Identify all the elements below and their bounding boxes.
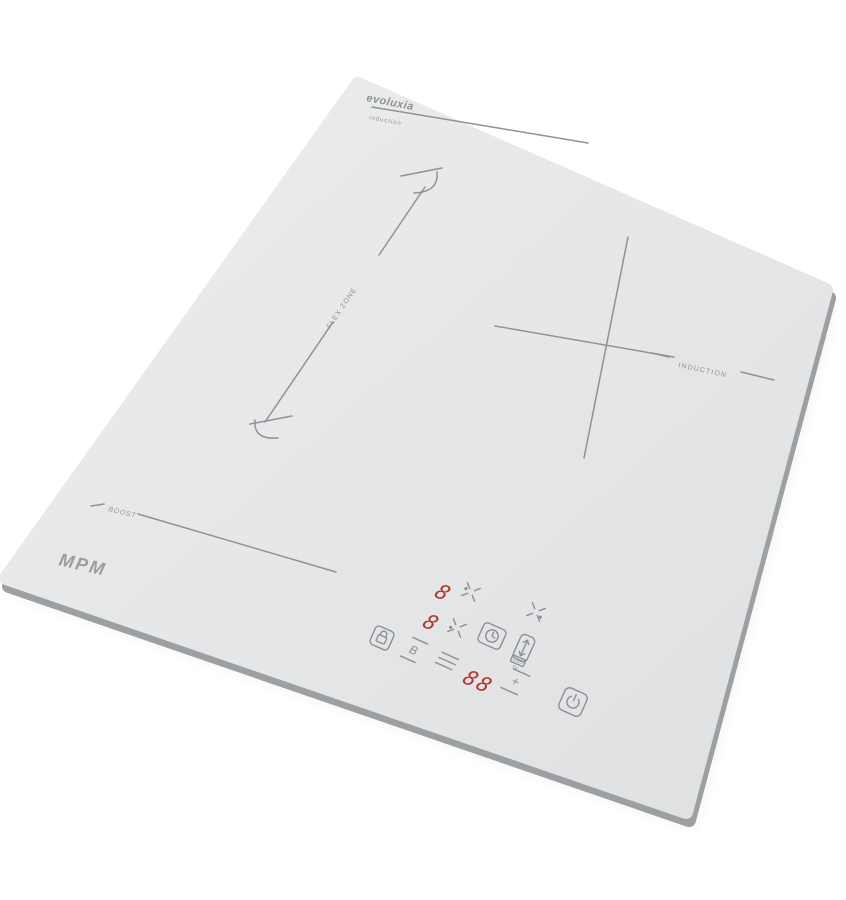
hob-scene: evoluxia induction FLEX ZONE INDUCTION B… (0, 0, 846, 900)
product-photo-induction-hob: evoluxia induction FLEX ZONE INDUCTION B… (0, 0, 846, 900)
